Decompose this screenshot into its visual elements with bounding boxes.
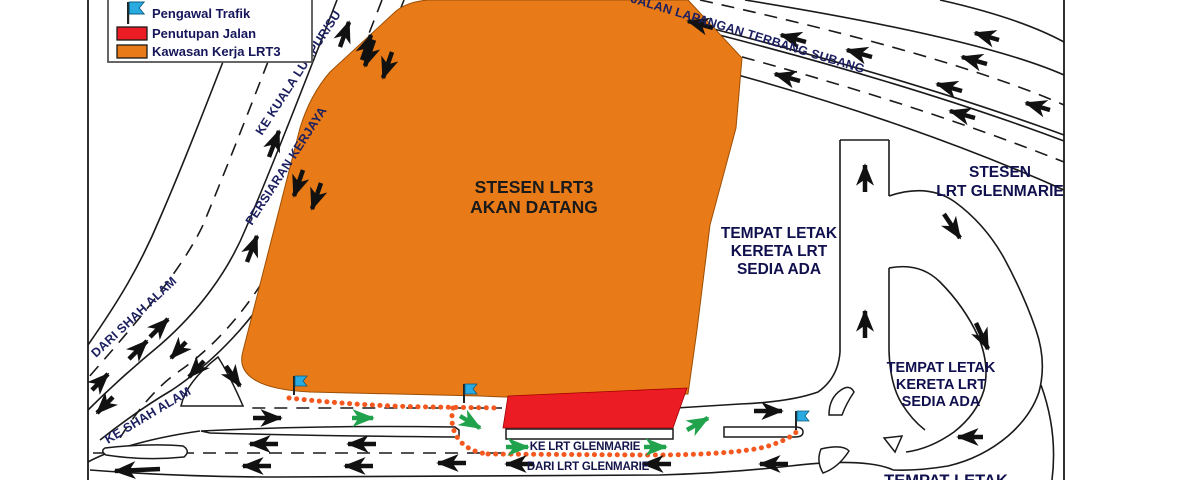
label-tempat1-line1: TEMPAT LETAK	[721, 225, 838, 242]
closure-swatch	[117, 27, 147, 40]
label-tempat-letak-3: TEMPAT LETAK	[884, 472, 1008, 480]
label-stesen-glenmarie-line1: STESEN	[969, 164, 1031, 181]
label-ke-shah-alam: KE SHAH ALAM	[102, 384, 193, 446]
work-area-swatch	[117, 45, 147, 58]
label-stesen-glenmarie-line2: LRT GLENMARIE	[936, 183, 1063, 200]
label-stesen-lrt3-line1: STESEN LRT3	[475, 177, 594, 197]
label-tempat1-line3: SEDIA ADA	[737, 261, 821, 278]
legend: Pengawal Trafik Penutupan Jalan Kawasan …	[108, 0, 312, 62]
label-stesen-lrt3-line2: AKAN DATANG	[470, 197, 598, 217]
label-ke-lrt-glenmarie: KE LRT GLENMARIE	[530, 441, 641, 453]
label-tempat2-line2: KERETA LRT	[896, 377, 986, 393]
label-tempat-letak-1: TEMPAT LETAK KERETA LRT SEDIA ADA	[721, 225, 838, 278]
label-dari-lrt-glenmarie: DARI LRT GLENMARIE	[527, 461, 650, 473]
label-tempat-letak-2: TEMPAT LETAK KERETA LRT SEDIA ADA	[887, 360, 996, 410]
legend-label-pengawal-trafik: Pengawal Trafik	[152, 6, 251, 21]
legend-label-kawasan-kerja: Kawasan Kerja LRT3	[152, 44, 281, 59]
traffic-flag-icon	[463, 384, 477, 403]
label-dari-shah-alam: DARI SHAH ALAM	[88, 274, 179, 360]
label-tempat2-line3: SEDIA ADA	[902, 394, 981, 410]
traffic-plan-map: KE KUALA LUMPUR/SU PERSIARAN KERJAYA DAR…	[0, 0, 1200, 480]
label-tempat1-line2: KERETA LRT	[731, 243, 828, 260]
label-tempat2-line1: TEMPAT LETAK	[887, 360, 996, 376]
label-stesen-lrt3: STESEN LRT3 AKAN DATANG	[470, 177, 598, 217]
legend-label-penutupan-jalan: Penutupan Jalan	[152, 26, 256, 41]
